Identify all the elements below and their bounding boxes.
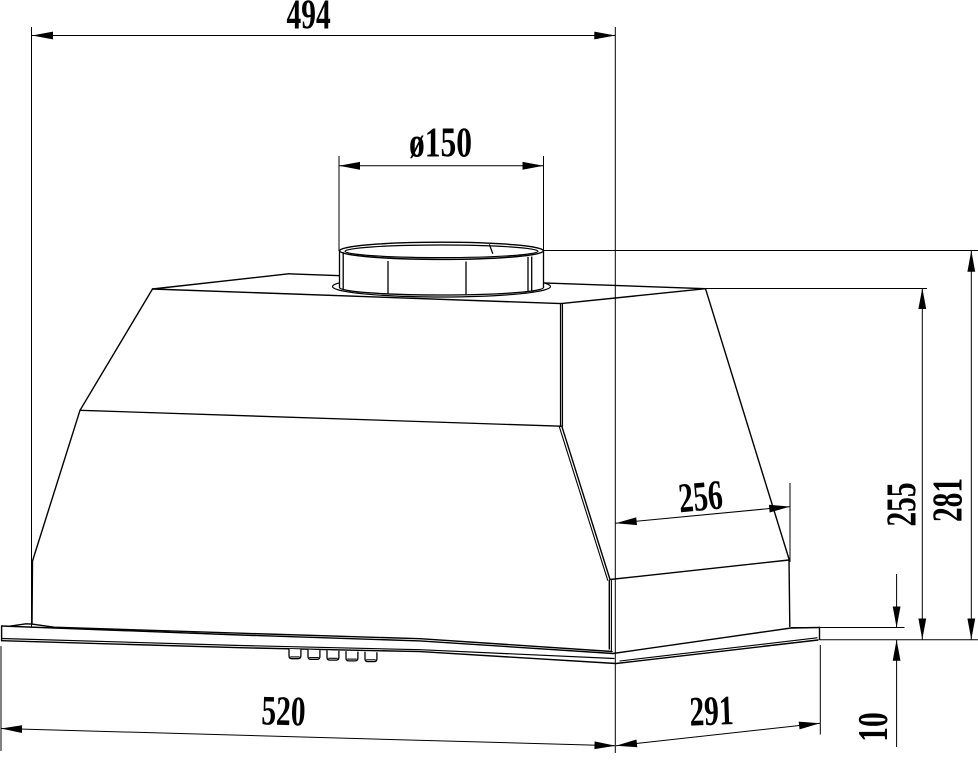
svg-text:291: 291 — [689, 687, 735, 735]
svg-text:520: 520 — [261, 687, 306, 735]
svg-text:10: 10 — [850, 712, 896, 741]
svg-text:256: 256 — [676, 471, 724, 521]
svg-text:281: 281 — [924, 478, 970, 522]
svg-text:255: 255 — [879, 482, 925, 526]
svg-text:ø150: ø150 — [409, 120, 472, 166]
svg-text:494: 494 — [287, 0, 331, 38]
